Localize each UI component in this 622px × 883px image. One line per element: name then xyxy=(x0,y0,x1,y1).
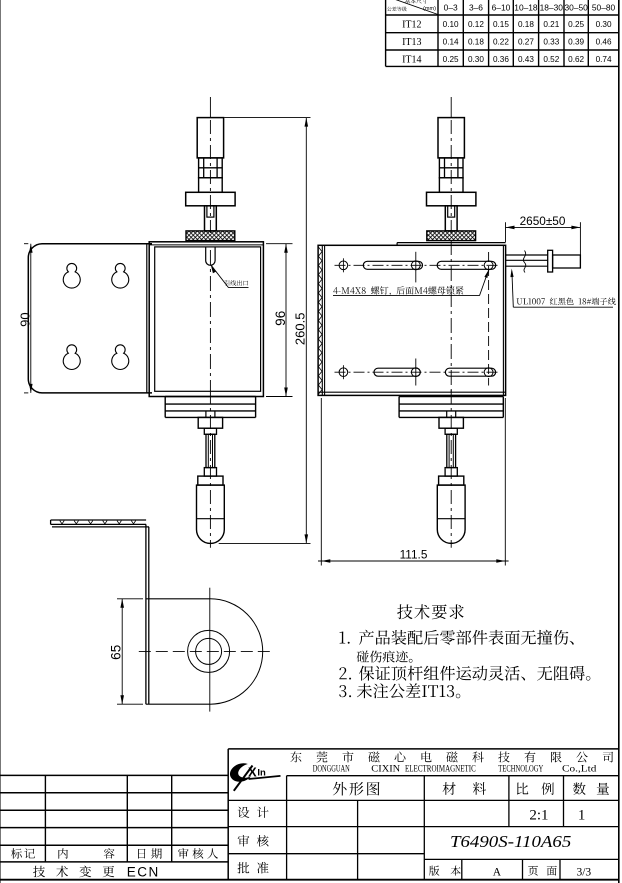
svg-text:0.52: 0.52 xyxy=(543,55,559,64)
svg-text:0.39: 0.39 xyxy=(568,38,584,47)
svg-text:0.10: 0.10 xyxy=(443,20,459,29)
svg-text:CIXIN: CIXIN xyxy=(371,765,400,775)
svg-text:0.33: 0.33 xyxy=(543,38,559,47)
svg-text:A: A xyxy=(493,866,502,878)
svg-text:ELECTROIMAGNETIC: ELECTROIMAGNETIC xyxy=(405,765,476,775)
svg-text:65: 65 xyxy=(109,645,124,660)
svg-text:18–30: 18–30 xyxy=(540,3,564,13)
svg-text:IT14: IT14 xyxy=(402,54,421,65)
svg-text:0.43: 0.43 xyxy=(518,55,534,64)
svg-text:3/3: 3/3 xyxy=(576,866,591,878)
svg-text:3–6: 3–6 xyxy=(469,3,483,13)
svg-text:IT12: IT12 xyxy=(402,20,421,31)
svg-text:0.62: 0.62 xyxy=(568,55,584,64)
svg-text:2:1: 2:1 xyxy=(529,808,548,824)
svg-text:1: 1 xyxy=(578,808,586,824)
svg-text:0.12: 0.12 xyxy=(468,20,484,29)
svg-text:260.5: 260.5 xyxy=(292,313,307,346)
svg-text:ECN: ECN xyxy=(127,865,160,880)
svg-text:96: 96 xyxy=(273,311,288,326)
svg-text:In: In xyxy=(257,768,266,779)
svg-text:0–3: 0–3 xyxy=(444,3,458,13)
svg-text:6–10: 6–10 xyxy=(492,3,511,13)
svg-text:2650±50: 2650±50 xyxy=(520,214,566,228)
svg-text:30–50: 30–50 xyxy=(565,3,589,13)
svg-text:X: X xyxy=(248,764,257,779)
svg-text:0.14: 0.14 xyxy=(443,38,459,47)
svg-text:0.46: 0.46 xyxy=(596,38,612,47)
svg-text:0.27: 0.27 xyxy=(518,38,534,47)
svg-text:0.18: 0.18 xyxy=(468,38,484,47)
svg-text:0.30: 0.30 xyxy=(468,55,484,64)
svg-text:IT13: IT13 xyxy=(402,37,421,48)
svg-text:0.25: 0.25 xyxy=(568,20,584,29)
svg-text:DONGGUAN: DONGGUAN xyxy=(313,765,350,775)
svg-text:Co.,Ltd: Co.,Ltd xyxy=(562,765,597,775)
svg-text:111.5: 111.5 xyxy=(400,548,428,562)
svg-text:TECHNOLOGY: TECHNOLOGY xyxy=(498,765,543,775)
svg-text:0.74: 0.74 xyxy=(596,55,612,64)
svg-text:0.25: 0.25 xyxy=(443,55,459,64)
svg-text:0.36: 0.36 xyxy=(493,55,509,64)
svg-text:(mm): (mm) xyxy=(423,6,436,12)
svg-text:90: 90 xyxy=(18,312,33,326)
svg-text:0.21: 0.21 xyxy=(543,20,559,29)
svg-text:0.15: 0.15 xyxy=(493,20,509,29)
svg-text:10–18: 10–18 xyxy=(514,3,538,13)
svg-text:50–80: 50–80 xyxy=(592,3,616,13)
svg-text:0.30: 0.30 xyxy=(596,20,612,29)
svg-text:0.22: 0.22 xyxy=(493,38,509,47)
svg-text:0.18: 0.18 xyxy=(518,20,534,29)
svg-text:T6490S-110A65: T6490S-110A65 xyxy=(450,832,571,851)
